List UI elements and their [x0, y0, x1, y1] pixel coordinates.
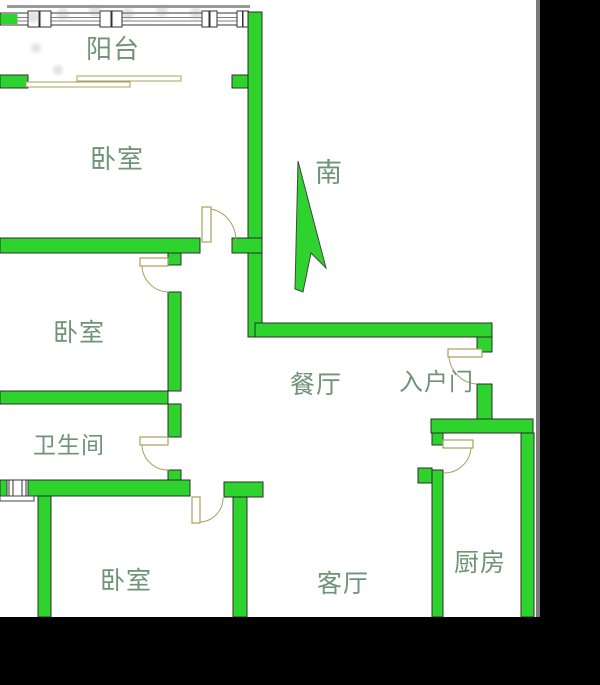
photo-mask-bottom — [0, 617, 600, 685]
window-post — [100, 11, 122, 27]
floor-plan-image: 阳台 卧室 南 卧室 餐厅 入户门 卫生间 卧室 客厅 厨房 — [0, 0, 600, 685]
window-sill — [0, 496, 34, 501]
window-post — [202, 11, 217, 27]
wall-segment — [248, 12, 262, 337]
wall-segment — [168, 253, 181, 265]
compass-south-label: 南 — [315, 160, 343, 187]
wall-segment — [0, 75, 28, 88]
wall-segment — [521, 433, 534, 617]
wall-segment — [431, 419, 533, 433]
room-label-bedroom-middle: 卧室 — [53, 320, 105, 345]
wall-segment — [0, 391, 168, 404]
wall-segment — [477, 384, 492, 419]
wall-segment — [28, 480, 190, 496]
door-bathroom — [140, 437, 169, 470]
wall-segment — [418, 468, 432, 483]
wall-segment — [168, 404, 181, 437]
room-label-dining: 餐厅 — [290, 372, 342, 397]
wall-segment — [255, 323, 492, 337]
wall-segment — [233, 497, 247, 617]
roof-line — [7, 5, 250, 8]
wall-segment — [224, 482, 263, 497]
room-label-bedroom-bottom: 卧室 — [100, 568, 152, 593]
wall-segment — [432, 433, 443, 445]
wall-segment — [38, 496, 51, 617]
room-label-entry-door: 入户门 — [399, 370, 474, 394]
door-bedroom-bottom — [192, 497, 223, 523]
wall-segment — [0, 480, 7, 496]
door-kitchen — [443, 440, 473, 473]
room-label-living: 客厅 — [317, 571, 369, 596]
wall-segment — [432, 470, 443, 617]
window-wall-fill — [1, 14, 18, 24]
room-label-bathroom: 卫生间 — [33, 435, 105, 458]
wall-segment — [232, 238, 262, 253]
window-post — [237, 11, 249, 27]
room-label-balcony: 阳台 — [86, 37, 140, 63]
walls — [0, 12, 534, 617]
wall-segment — [232, 75, 248, 88]
wall-segment — [168, 292, 181, 391]
room-label-bedroom-top: 卧室 — [90, 147, 144, 173]
mask-divider-line — [536, 0, 540, 617]
wall-segment — [0, 238, 200, 253]
door-bedroom-top — [202, 207, 236, 246]
door-bedroom-middle — [140, 258, 169, 292]
balcony-sliding-door — [26, 76, 181, 87]
photo-mask-right — [540, 0, 600, 685]
room-label-kitchen: 厨房 — [454, 550, 506, 575]
